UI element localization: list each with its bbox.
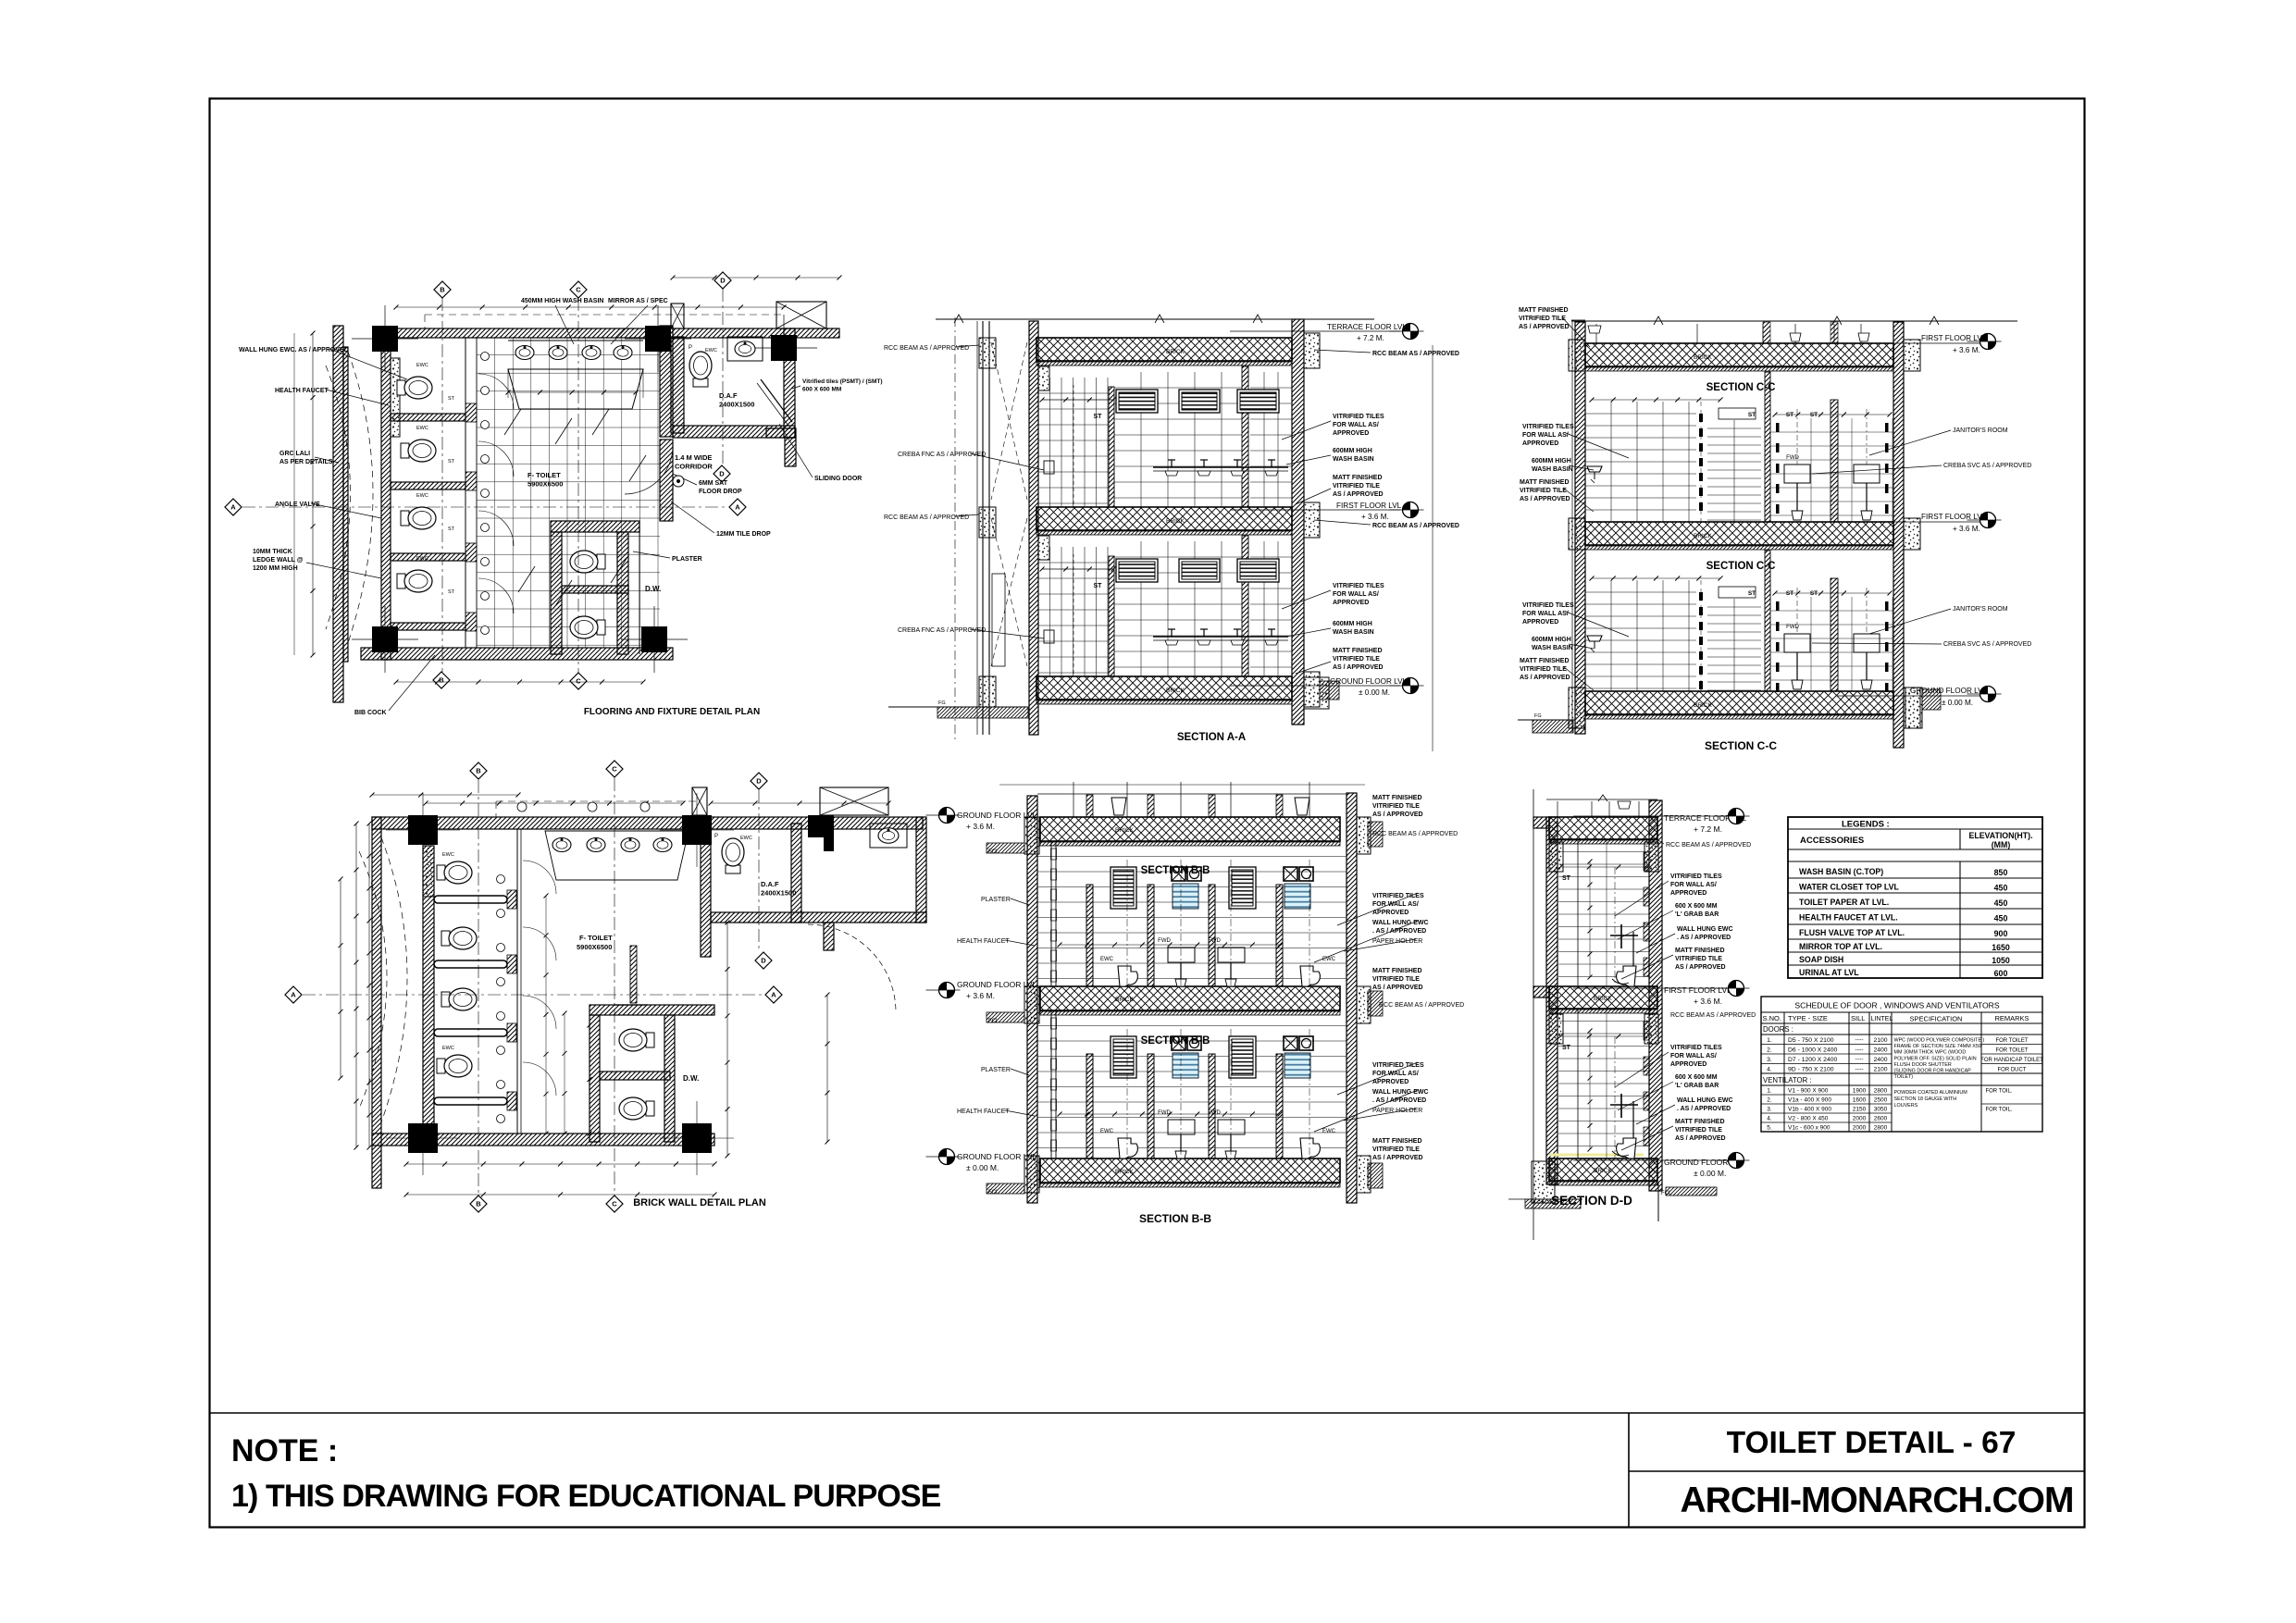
svg-text:P: P [689,345,692,351]
svg-text:EWC: EWC [416,556,428,562]
svg-text:P: P [714,834,718,839]
svg-text:BRICK: BRICK [1115,827,1135,834]
svg-text:RCC BEAM AS / APPROVED: RCC BEAM AS / APPROVED [1670,1012,1756,1019]
svg-text:APPROVED: APPROVED [1522,440,1558,447]
svg-text:BRICK: BRICK [1166,518,1185,525]
svg-text:2100: 2100 [1873,1067,1887,1073]
svg-text:450: 450 [1994,884,2008,893]
svg-text:BRICK: BRICK [1694,702,1713,709]
svg-text:C: C [612,1200,617,1208]
svg-text:2400X1500: 2400X1500 [761,889,796,898]
svg-text:SCHEDULE OF DOOR , WINDOWS: SCHEDULE OF DOOR , WINDOWS AND VENTILATO… [1794,1001,2000,1010]
svg-text:TOILET): TOILET) [1894,1074,1914,1080]
svg-text:A: A [735,503,740,512]
svg-text:MM 30MM THICK WPC (WOOD: MM 30MM THICK WPC (WOOD [1894,1050,1967,1056]
svg-text:URINAL AT LVL: URINAL AT LVL [1799,968,1859,977]
svg-text:AS / APPROVED: AS / APPROVED [1520,675,1570,681]
svg-text:2150: 2150 [1853,1107,1867,1113]
svg-text:SECTION B-B: SECTION B-B [1139,1212,1211,1225]
svg-text:NOTE :: NOTE : [231,1433,338,1468]
svg-text:900: 900 [1994,929,2008,938]
svg-text:CREBA FNC AS / APPROVED: CREBA FNC AS / APPROVED [898,627,986,634]
svg-text:APPROVED: APPROVED [1372,1079,1409,1085]
svg-text:FOR WALL AS/: FOR WALL AS/ [1670,1053,1717,1059]
svg-text:A: A [230,503,236,512]
svg-text:APPROVED: APPROVED [1372,910,1409,916]
svg-text:AS / APPROVED: AS / APPROVED [1372,811,1423,818]
svg-text:12MM TILE DROP: 12MM TILE DROP [716,531,771,538]
svg-text:'L' GRAB BAR: 'L' GRAB BAR [1675,1083,1719,1089]
svg-text:WALL HUNG EWC: WALL HUNG EWC [1372,920,1429,926]
svg-text:2400: 2400 [1873,1047,1887,1054]
svg-text:C: C [576,677,581,686]
svg-text:BRICK WALL DETAIL PLAN: BRICK WALL DETAIL PLAN [633,1197,766,1208]
svg-text:VITRIFIED TILE: VITRIFIED TILE [1519,316,1566,322]
svg-text:CORRIDOR: CORRIDOR [675,463,713,471]
svg-text:450: 450 [1994,898,2008,908]
svg-text:VITRIFIED TILES: VITRIFIED TILES [1333,414,1384,420]
svg-text:D: D [761,957,766,965]
svg-text:FOR TOILET: FOR TOILET [1995,1048,2028,1054]
svg-text:D.W.: D.W. [683,1074,699,1083]
svg-text:BRICK: BRICK [1694,533,1713,539]
svg-text:D6 - 1000 X 2400: D6 - 1000 X 2400 [1788,1047,1837,1054]
svg-text:ST: ST [1786,412,1793,418]
svg-text:APPROVED: APPROVED [1670,890,1706,897]
svg-text:F- TOILET: F- TOILET [527,471,561,479]
svg-text:WASH BASIN: WASH BASIN [1532,466,1573,473]
svg-text:± 0.00 M.: ± 0.00 M. [1359,688,1390,697]
svg-text:D: D [719,470,725,478]
svg-text:1050: 1050 [1992,956,2010,965]
svg-text:ELEVATION(HT).: ELEVATION(HT). [1968,831,2032,840]
svg-text:FOR WALL AS/: FOR WALL AS/ [1333,591,1379,598]
svg-text:FOR WALL AS/: FOR WALL AS/ [1670,882,1717,888]
svg-text:ST: ST [1562,1045,1571,1051]
svg-text:9D - 750 X 2100: 9D - 750 X 2100 [1788,1067,1834,1073]
svg-text:VITRIFIED TILE: VITRIFIED TILE [1675,956,1722,962]
svg-text:TOILET DETAIL - 67: TOILET DETAIL - 67 [1727,1426,2017,1460]
svg-text:VITRIFIED TILE: VITRIFIED TILE [1333,656,1380,663]
svg-text:D5 - 750 X 2100: D5 - 750 X 2100 [1788,1037,1834,1044]
svg-text:D.A.F: D.A.F [719,391,738,400]
svg-text:ARCHI-MONARCH.COM: ARCHI-MONARCH.COM [1681,1481,2074,1520]
svg-text:SPECIFICATION: SPECIFICATION [1910,1015,1963,1023]
svg-text:FG: FG [938,700,946,706]
svg-text:JANITOR'S ROOM: JANITOR'S ROOM [1953,427,2008,434]
svg-text:FIRST FLOOR LVL: FIRST FLOOR LVL [1664,985,1731,995]
svg-text:D7 - 1200 X 2400: D7 - 1200 X 2400 [1788,1057,1837,1063]
svg-text:FOR WALL AS/: FOR WALL AS/ [1333,422,1379,428]
svg-text:2400X1500: 2400X1500 [719,401,754,409]
svg-text:D.W.: D.W. [645,585,661,593]
svg-text:600 X 600 MM: 600 X 600 MM [1675,903,1718,910]
svg-text:VITRIFIED TILE: VITRIFIED TILE [1372,803,1420,810]
svg-text:WASH BASIN: WASH BASIN [1333,629,1374,636]
svg-text:EWC: EWC [740,836,752,841]
svg-text:VITRIFIED TILES: VITRIFIED TILES [1670,1045,1722,1051]
svg-text:BRICK: BRICK [1694,354,1713,361]
svg-text:MATT FINISHED: MATT FINISHED [1372,968,1422,974]
svg-text:AS PER DETAILS: AS PER DETAILS [279,459,333,465]
svg-text:+ 7.2 M.: + 7.2 M. [1357,334,1384,342]
svg-text:BRICK: BRICK [1115,1169,1135,1175]
svg-text:FIRST FLOOR LVL: FIRST FLOOR LVL [1336,502,1402,510]
svg-text:3050: 3050 [1874,1107,1888,1113]
svg-text:BRICK: BRICK [1166,349,1185,355]
svg-text:D: D [720,277,726,285]
svg-text:VITRIFIED TILE: VITRIFIED TILE [1333,483,1380,489]
svg-text:V2 - 800 X 450: V2 - 800 X 450 [1788,1116,1829,1122]
svg-text:FLUSH VALVE TOP AT LVL.: FLUSH VALVE TOP AT LVL. [1799,928,1905,937]
svg-text:FOR WALL AS/: FOR WALL AS/ [1522,611,1569,617]
svg-text:VITRIFIED TILES: VITRIFIED TILES [1522,602,1574,609]
svg-text:WASH BASIN (C.TOP): WASH BASIN (C.TOP) [1799,867,1883,876]
svg-text:FWD: FWD [1786,625,1799,630]
svg-text:3.: 3. [1767,1107,1772,1113]
svg-text:+ 3.6 M.: + 3.6 M. [1953,525,1980,533]
svg-text:FWD: FWD [1208,938,1221,944]
svg-text:GROUND FLOOR LVL: GROUND FLOOR LVL [1330,677,1408,686]
svg-text:FOR TOILET: FOR TOILET [1995,1038,2028,1044]
svg-text:LEDGE WALL @: LEDGE WALL @ [253,557,304,564]
svg-text:600 X 600 MM: 600 X 600 MM [802,387,841,393]
svg-text:LEGENDS :: LEGENDS : [1842,820,1890,830]
svg-text:VENTILATOR :: VENTILATOR : [1763,1076,1812,1084]
svg-text:WPC (WOOD POLYMER COMPOSITE ): WPC (WOOD POLYMER COMPOSITE ) [1894,1038,1985,1044]
svg-text:FCL: FCL [988,1190,999,1196]
svg-text:FLOORING AND FIXTURE DETAIL PL: FLOORING AND FIXTURE DETAIL PLAN [584,707,760,717]
svg-text:MATT FINISHED: MATT FINISHED [1520,479,1570,486]
svg-text:ST: ST [448,589,455,595]
svg-text:V1b - 400 X 900: V1b - 400 X 900 [1788,1107,1831,1113]
svg-text:. AS / APPROVED: . AS / APPROVED [1372,1097,1426,1104]
svg-text:SOAP DISH: SOAP DISH [1799,955,1843,964]
svg-text:GROUND FLOOR LVL: GROUND FLOOR LVL [957,1152,1037,1161]
svg-text:----: ---- [1855,1057,1863,1063]
svg-text:V1 - 900 X 900: V1 - 900 X 900 [1788,1088,1829,1095]
svg-text:ST: ST [448,527,455,532]
svg-text:FWD: FWD [1158,1110,1171,1116]
svg-text:SECTION C-C: SECTION C-C [1705,739,1777,752]
svg-text:RCC BEAM AS / APPROVED: RCC BEAM AS / APPROVED [1372,523,1459,529]
svg-text:1900: 1900 [1853,1088,1867,1095]
svg-text:AS / APPROVED: AS / APPROVED [1675,1135,1726,1142]
svg-text:EWC: EWC [1322,957,1336,962]
svg-text:MATT FINISHED: MATT FINISHED [1520,658,1570,664]
svg-text:1.: 1. [1767,1088,1772,1095]
svg-text:VITRIFIED TILES: VITRIFIED TILES [1372,1062,1424,1069]
svg-text:EWC: EWC [705,348,717,353]
svg-text:FRAME OF SECTION SIZE 74MM X50: FRAME OF SECTION SIZE 74MM X50 [1894,1044,1981,1049]
svg-text:JANITOR'S ROOM: JANITOR'S ROOM [1953,606,2008,613]
svg-text:600 X 600 MM: 600 X 600 MM [1675,1074,1718,1081]
svg-text:PLASTER: PLASTER [672,556,702,563]
svg-text:DOORS :: DOORS : [1763,1025,1793,1034]
svg-text:AS / APPROVED: AS / APPROVED [1372,1155,1423,1161]
svg-text:ST: ST [1562,875,1571,882]
svg-text:TYPE - SIZE: TYPE - SIZE [1788,1014,1828,1022]
svg-text:SECTION A-A: SECTION A-A [1177,732,1246,743]
svg-text:ST: ST [1786,590,1793,597]
svg-text:EWC: EWC [442,1046,454,1051]
svg-text:SECTION 18 GAUGE WITH: SECTION 18 GAUGE WITH [1894,1096,1957,1102]
svg-text:AS / APPROVED: AS / APPROVED [1520,496,1570,502]
svg-text:----: ---- [1855,1047,1863,1053]
svg-text:APPROVED: APPROVED [1522,619,1558,626]
svg-text:V1a - 400 X 900: V1a - 400 X 900 [1788,1097,1831,1104]
svg-text:A: A [291,991,296,999]
svg-text:BRICK: BRICK [1594,996,1613,1002]
svg-text:PLASTER: PLASTER [981,897,1011,903]
svg-text:FOR WALL AS/: FOR WALL AS/ [1522,432,1569,439]
svg-text:(MM): (MM) [1992,840,2011,849]
svg-text:RCC BEAM AS / APPROVED: RCC BEAM AS / APPROVED [1372,831,1458,837]
svg-text:BRICK: BRICK [1115,997,1135,1003]
svg-text:FCL: FCL [988,1019,999,1024]
svg-text:APPROVED: APPROVED [1670,1061,1706,1068]
svg-text:B: B [476,1200,481,1208]
svg-text:REMARKS: REMARKS [1994,1014,2029,1022]
svg-text:----: ---- [1855,1037,1863,1044]
svg-text:5900X6500: 5900X6500 [527,480,563,489]
svg-text:2.: 2. [1767,1097,1772,1104]
svg-text:VITRIFIED TILE: VITRIFIED TILE [1520,488,1567,494]
svg-text:MATT FINISHED: MATT FINISHED [1372,795,1422,801]
svg-text:+ 3.6 M.: + 3.6 M. [1694,997,1722,1006]
svg-text:D: D [756,777,762,786]
svg-text:HEALTH FAUCET: HEALTH FAUCET [275,388,329,394]
svg-text:EWC: EWC [1100,1129,1114,1134]
svg-text:WALL HUNG EWC: WALL HUNG EWC [1677,1097,1733,1104]
svg-text:+ 7.2 M.: + 7.2 M. [1694,824,1722,834]
svg-text:VITRIFIED TILE: VITRIFIED TILE [1520,666,1567,673]
svg-text:EWC: EWC [416,493,428,499]
svg-text:CREBA SVC AS / APPROVED: CREBA SVC AS / APPROVED [1943,641,2031,648]
svg-text:RCC BEAM AS / APPROVED: RCC BEAM AS / APPROVED [884,514,969,521]
svg-text:CREBA SVC AS / APPROVED: CREBA SVC AS / APPROVED [1943,463,2031,469]
svg-text:D.A.F: D.A.F [761,880,779,888]
svg-text:FWD: FWD [1786,455,1799,461]
svg-text:BRICK: BRICK [1594,1168,1613,1174]
svg-text:FG: FG [1534,713,1542,719]
svg-text:BRICK: BRICK [1166,688,1185,694]
svg-text:HEALTH FAUCET AT LVL.: HEALTH FAUCET AT LVL. [1799,913,1898,923]
svg-text:600MM HIGH: 600MM HIGH [1333,621,1372,627]
svg-text:FLOOR DROP: FLOOR DROP [699,489,742,495]
svg-text:VITRIFIED TILE: VITRIFIED TILE [1675,1127,1722,1134]
svg-text:+ 3.6 M.: + 3.6 M. [1953,346,1980,354]
svg-text:AS / APPROVED: AS / APPROVED [1333,664,1384,671]
svg-text:600MM HIGH: 600MM HIGH [1532,637,1571,643]
svg-text:GROUND FLOOR LVL: GROUND FLOOR LVL [957,811,1037,820]
svg-text:600MM HIGH: 600MM HIGH [1333,448,1372,454]
svg-text:± 0.00 M.: ± 0.00 M. [1694,1169,1726,1178]
svg-text:FOR TOIL.: FOR TOIL. [1985,1108,2012,1113]
svg-text:TERRACE FLOOR LVL: TERRACE FLOOR LVL [1327,323,1407,331]
svg-text:SECTION D-D: SECTION D-D [1551,1194,1632,1208]
svg-text:6MM SAT: 6MM SAT [699,480,728,487]
svg-text:VITRIFIED TILES: VITRIFIED TILES [1522,424,1574,430]
svg-text:MATT FINISHED: MATT FINISHED [1675,948,1725,954]
svg-text:POLYMER OFF. SIZE) SOLID PLAIN: POLYMER OFF. SIZE) SOLID PLAIN [1894,1056,1977,1061]
svg-text:AS / APPROVED: AS / APPROVED [1333,491,1384,498]
svg-text:+ 3.6 M.: + 3.6 M. [966,991,995,1000]
svg-text:1200 MM HIGH: 1200 MM HIGH [253,565,298,572]
svg-text:± 0.00 M.: ± 0.00 M. [966,1163,999,1172]
svg-text:V1c - 600 x 900: V1c - 600 x 900 [1788,1125,1831,1132]
svg-text:CREBA FNC AS / APPROVED: CREBA FNC AS / APPROVED [898,452,986,458]
svg-text:ST: ST [1748,590,1756,597]
svg-text:2600: 2600 [1874,1116,1888,1122]
svg-text:SECTION C-C: SECTION C-C [1706,382,1776,393]
svg-text:2000: 2000 [1853,1116,1867,1122]
svg-text:600MM HIGH: 600MM HIGH [1532,458,1571,465]
svg-text:MATT FINISHED: MATT FINISHED [1372,1138,1422,1145]
svg-text:850: 850 [1994,868,2008,877]
svg-text:2.: 2. [1767,1047,1772,1054]
svg-text:EWC: EWC [1100,957,1114,962]
svg-text:10MM THICK: 10MM THICK [253,549,292,555]
svg-text:MATT FINISHED: MATT FINISHED [1333,475,1383,481]
svg-text:ANGLE VALVE: ANGLE VALVE [275,502,320,508]
svg-text:C: C [612,765,617,774]
svg-text:2800: 2800 [1874,1088,1888,1095]
svg-text:MATT FINISHED: MATT FINISHED [1675,1119,1725,1125]
svg-text:2500: 2500 [1874,1097,1888,1104]
svg-text:MATT FINISHED: MATT FINISHED [1519,307,1569,314]
svg-text:. AS / APPROVED: . AS / APPROVED [1372,928,1426,935]
svg-text:ST: ST [1810,412,1818,418]
svg-text:C: C [576,286,581,294]
svg-text:Vitrified tiles (PSMT) / (SMT): Vitrified tiles (PSMT) / (SMT) [802,378,883,385]
svg-text:GROUND FLOOR LVL: GROUND FLOOR LVL [957,980,1037,989]
svg-text:ST: ST [448,459,455,465]
svg-text:WALL HUNG EWC: WALL HUNG EWC [1372,1089,1429,1096]
svg-text:FOR HANDICAP TOILET: FOR HANDICAP TOILET [1980,1058,2043,1063]
svg-text:EWC: EWC [416,363,428,368]
svg-text:POWDER COATED ALUMINIUM: POWDER COATED ALUMINIUM [1894,1090,1968,1096]
svg-text:VITRIFIED TILES: VITRIFIED TILES [1333,583,1384,589]
svg-text:AS / APPROVED: AS / APPROVED [1675,964,1726,971]
svg-text:FOR DUCT: FOR DUCT [1998,1068,2027,1073]
svg-text:AS / APPROVED: AS / APPROVED [1372,985,1423,991]
svg-text:APPROVED: APPROVED [1333,430,1369,437]
svg-text:FWD: FWD [1208,1110,1221,1116]
svg-text:. AS / APPROVED: . AS / APPROVED [1677,935,1731,941]
svg-text:MIRROR TOP AT LVL.: MIRROR TOP AT LVL. [1799,942,1882,951]
svg-text:SLIDING DOOR: SLIDING DOOR [814,476,862,482]
svg-text:+ 3.6 M.: + 3.6 M. [1361,513,1389,521]
svg-text:VITRIFIED TILE: VITRIFIED TILE [1372,1146,1420,1153]
svg-text:RCC BEAM AS / APPROVED: RCC BEAM AS / APPROVED [1372,351,1459,357]
svg-text:FOR TOIL.: FOR TOIL. [1985,1089,2012,1095]
svg-text:WALL HUNG EWC: WALL HUNG EWC [1677,926,1733,933]
svg-text:450: 450 [1994,914,2008,923]
svg-text:LINTEL: LINTEL [1871,1016,1893,1022]
svg-text:BIB COCK: BIB COCK [354,710,387,716]
svg-text:FWD: FWD [1158,938,1171,944]
svg-text:HEALTH FAUCET: HEALTH FAUCET [957,1109,1010,1115]
svg-text:B: B [440,286,445,294]
svg-text:RCC BEAM AS / APPROVED: RCC BEAM AS / APPROVED [884,345,969,352]
svg-text:TOILET PAPER AT LVL.: TOILET PAPER AT LVL. [1799,898,1889,907]
svg-text:MATT FINISHED: MATT FINISHED [1333,648,1383,654]
svg-text:RCC BEAM AS / APPROVED: RCC BEAM AS / APPROVED [1379,1002,1464,1009]
svg-text:MIRROR AS / SPEC: MIRROR AS / SPEC [608,298,668,304]
svg-text:FCL: FCL [1661,1191,1672,1196]
svg-text:RCC BEAM AS / APPROVED: RCC BEAM AS / APPROVED [1666,842,1751,849]
svg-text:S.NO.: S.NO. [1763,1014,1781,1022]
svg-text:SECTION B-B: SECTION B-B [1141,865,1210,876]
svg-text:WASH BASIN: WASH BASIN [1333,456,1374,463]
svg-text:2000: 2000 [1853,1125,1867,1132]
svg-text:1650: 1650 [1992,943,2010,952]
svg-text:----: ---- [1855,1066,1863,1072]
svg-text:AS / APPROVED: AS / APPROVED [1519,324,1570,330]
svg-text:APPROVED: APPROVED [1333,600,1369,606]
svg-text:600: 600 [1994,969,2008,978]
svg-text:+ 3.6 M.: + 3.6 M. [966,822,995,831]
svg-text:A: A [771,991,776,999]
svg-text:4.: 4. [1767,1067,1772,1073]
svg-text:ST: ST [1094,583,1103,589]
svg-text:ST: ST [1748,412,1756,418]
svg-text:F- TOILET: F- TOILET [579,934,613,942]
svg-text:1) THIS DRAWING FOR EDUCATIONA: 1) THIS DRAWING FOR EDUCATIONAL PURPOSE [231,1479,941,1514]
svg-text:VITRIFIED TILE: VITRIFIED TILE [1372,976,1420,983]
svg-text:± 0.00 M.: ± 0.00 M. [1942,699,1973,707]
svg-text:EWC: EWC [416,426,428,431]
svg-text:LOUVERS: LOUVERS [1894,1103,1918,1109]
svg-text:'L' GRAB BAR: 'L' GRAB BAR [1675,911,1719,918]
svg-text:GRC LALI: GRC LALI [279,451,310,457]
svg-text:PLASTER: PLASTER [981,1067,1011,1073]
svg-text:5.: 5. [1767,1125,1772,1132]
svg-text:5900X6500: 5900X6500 [577,943,612,951]
svg-text:B: B [476,767,481,775]
svg-text:B: B [439,676,444,685]
svg-text:WASH BASIN: WASH BASIN [1532,645,1573,651]
svg-text:WATER CLOSET TOP LVL: WATER CLOSET TOP LVL [1799,883,1899,892]
svg-text:SILL: SILL [1851,1014,1865,1022]
svg-text:2100: 2100 [1873,1037,1887,1044]
svg-text:ST: ST [1810,590,1818,597]
svg-text:VITRIFIED TILES: VITRIFIED TILES [1372,893,1424,899]
svg-text:ST: ST [448,396,455,402]
svg-text:ACCESSORIES: ACCESSORIES [1800,836,1864,846]
svg-text:. AS / APPROVED: . AS / APPROVED [1677,1106,1731,1112]
svg-text:HEALTH FAUCET: HEALTH FAUCET [957,938,1010,945]
svg-text:2800: 2800 [1874,1125,1888,1132]
svg-text:FCL: FCL [988,849,999,855]
svg-text:1.4 M WIDE: 1.4 M WIDE [675,453,712,462]
svg-text:3.: 3. [1767,1057,1772,1063]
svg-text:ST: ST [1094,414,1103,420]
svg-text:1.: 1. [1767,1037,1772,1044]
svg-text:2400: 2400 [1873,1057,1887,1063]
svg-text:FLUSH DOOR SHUTTER: FLUSH DOOR SHUTTER [1894,1062,1952,1068]
svg-text:EWC: EWC [442,852,454,858]
svg-text:VITRIFIED TILES: VITRIFIED TILES [1670,873,1722,880]
svg-text:SECTION B-B: SECTION B-B [1141,1035,1210,1047]
svg-text:4.: 4. [1767,1116,1772,1122]
svg-text:EWC: EWC [1322,1129,1336,1134]
svg-text:450MM HIGH WASH BASIN: 450MM HIGH WASH BASIN [521,298,603,304]
svg-text:1600: 1600 [1853,1097,1867,1104]
svg-text:SECTION C-C: SECTION C-C [1706,561,1776,572]
